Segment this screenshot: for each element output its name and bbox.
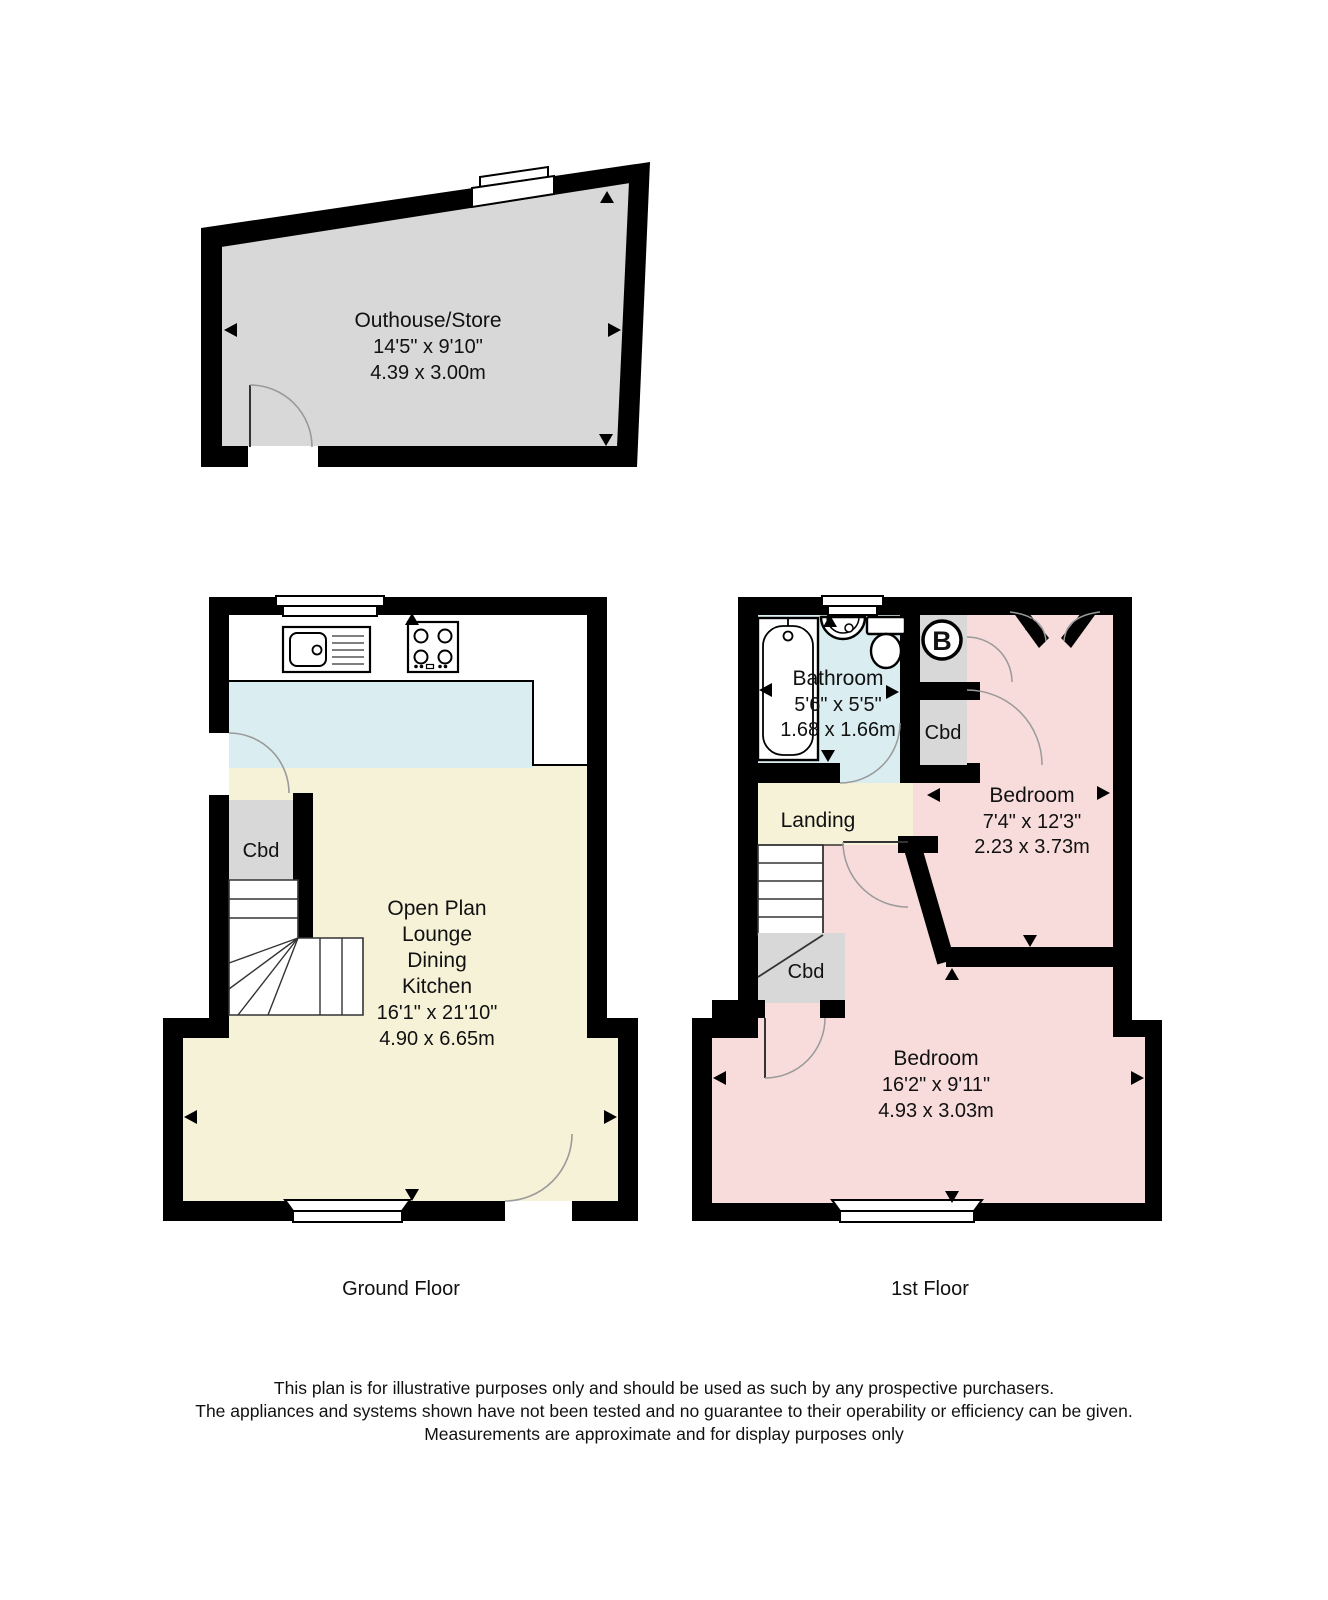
floorplan-page: Outhouse/Store 14'5" x 9'10" 4.39 x 3.00…	[0, 0, 1328, 1600]
bedroom-large-name: Bedroom	[893, 1047, 978, 1070]
floorplan-drawing: Outhouse/Store 14'5" x 9'10" 4.39 x 3.00…	[0, 0, 1328, 1600]
openplan-dims-m: 4.90 x 6.65m	[379, 1028, 495, 1050]
first-stairs-icon	[758, 845, 823, 935]
sink-icon	[283, 627, 370, 672]
disclaimer-line-2: The appliances and systems shown have no…	[195, 1401, 1133, 1421]
boiler-label: B	[932, 626, 952, 656]
disclaimer-block: This plan is for illustrative purposes o…	[195, 1378, 1133, 1444]
floor-captions: Ground Floor 1st Floor	[342, 1278, 969, 1300]
bedroom-large-dims-m: 4.93 x 3.03m	[878, 1100, 994, 1122]
bathroom-dims-ft: 5'6" x 5'5"	[794, 694, 881, 716]
openplan-line3: Dining	[407, 949, 467, 972]
bedroom-small-name: Bedroom	[989, 784, 1074, 807]
disclaimer-line-3: Measurements are approximate and for dis…	[424, 1424, 904, 1444]
openplan-line4: Kitchen	[402, 975, 472, 998]
first-floor-caption: 1st Floor	[891, 1278, 969, 1300]
disclaimer-line-1: This plan is for illustrative purposes o…	[274, 1378, 1054, 1398]
hob-icon	[408, 622, 458, 672]
bedroom-small-dims-m: 2.23 x 3.73m	[974, 836, 1090, 858]
ground-bay-window-icon	[285, 1200, 410, 1222]
outhouse-name: Outhouse/Store	[354, 309, 501, 332]
bathroom-name: Bathroom	[792, 667, 883, 690]
openplan-line1: Open Plan	[387, 897, 486, 920]
bathroom-door-gap	[840, 763, 900, 783]
bedroom-large-dims-ft: 16'2" x 9'11"	[882, 1074, 990, 1096]
bathroom-dims-m: 1.68 x 1.66m	[780, 719, 896, 741]
understairs-wall-left	[712, 1000, 765, 1018]
ground-floor-plan: Cbd Open Plan Lounge Dining Kitchen 16'1…	[163, 596, 638, 1222]
kitchen-counter-right	[533, 615, 587, 765]
bedroom-small-dims-ft: 7'4" x 12'3"	[983, 811, 1082, 833]
ground-cupboard-label: Cbd	[243, 840, 280, 862]
first-floor-plan: B	[692, 596, 1162, 1222]
kitchen-window-icon	[276, 596, 384, 616]
outhouse-dims-m: 4.39 x 3.00m	[370, 362, 486, 384]
toilet-icon	[867, 617, 905, 668]
outhouse-dims-ft: 14'5" x 9'10"	[373, 336, 483, 358]
understairs-wall-right	[820, 1000, 845, 1018]
ground-floor-caption: Ground Floor	[342, 1278, 460, 1300]
landing-label: Landing	[781, 809, 856, 832]
cupboard-top-label: Cbd	[925, 722, 962, 744]
first-bay-window-icon	[832, 1200, 982, 1222]
outhouse-room: Outhouse/Store 14'5" x 9'10" 4.39 x 3.00…	[201, 162, 650, 468]
bedroom-small-bottom-wall	[946, 947, 1113, 967]
cupboard-stairs-label: Cbd	[788, 961, 825, 983]
closet-divider-wall	[917, 682, 980, 700]
openplan-line2: Lounge	[402, 923, 472, 946]
bathroom-window-icon	[822, 596, 883, 615]
openplan-dims-ft: 16'1" x 21'10"	[377, 1002, 498, 1024]
boiler-icon: B	[923, 621, 961, 659]
